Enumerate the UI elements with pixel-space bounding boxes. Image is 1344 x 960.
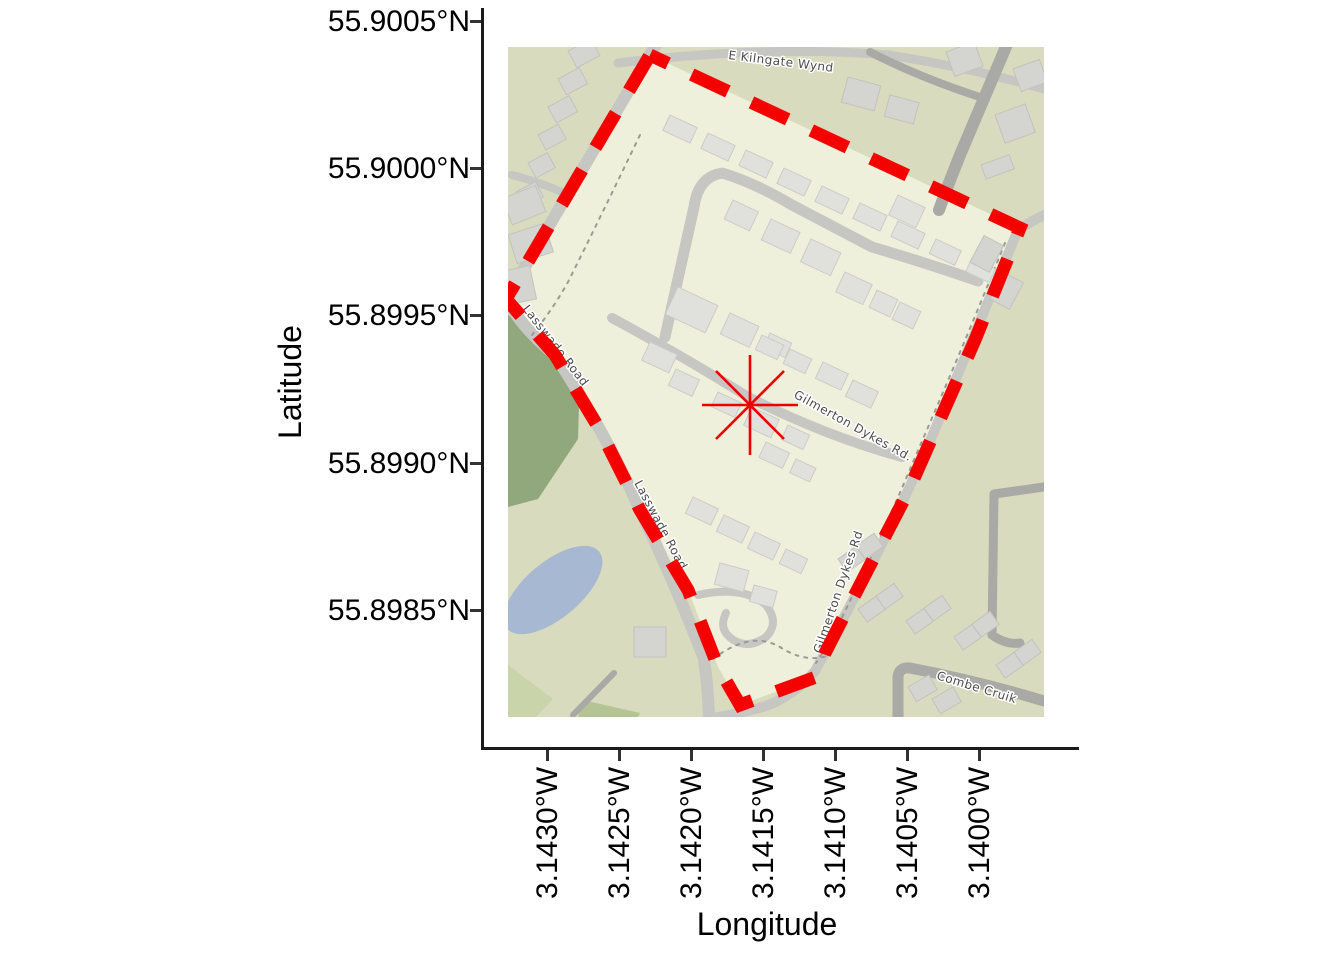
x-tick-label: 3.1420°W [675,748,709,918]
y-tick [470,20,481,23]
x-tick-label: 3.1400°W [963,748,997,918]
y-tick-label: 55.8995°N [290,299,470,333]
y-tick-label: 55.9005°N [290,5,470,39]
x-tick-label: 3.1405°W [891,748,925,918]
x-tick-label: 3.1410°W [819,748,853,918]
y-tick-label: 55.8985°N [290,594,470,628]
y-axis-title: Latitude [272,297,308,467]
y-tick [470,609,481,612]
x-tick-label: 3.1430°W [531,748,565,918]
x-tick-label: 3.1415°W [747,748,781,918]
x-tick-label: 3.1425°W [603,748,637,918]
y-axis-line [481,8,484,748]
y-tick-label: 55.9000°N [290,152,470,186]
y-tick-label: 55.8990°N [290,447,470,481]
map-panel: E Kilngate Wynd Lasswade Road Lasswade R… [508,47,1044,717]
y-tick [470,167,481,170]
y-tick [470,462,481,465]
map-figure: 55.9005°N 55.9000°N 55.8995°N 55.8990°N … [0,0,1344,960]
x-axis-title: Longitude [597,906,937,942]
y-tick [470,314,481,317]
